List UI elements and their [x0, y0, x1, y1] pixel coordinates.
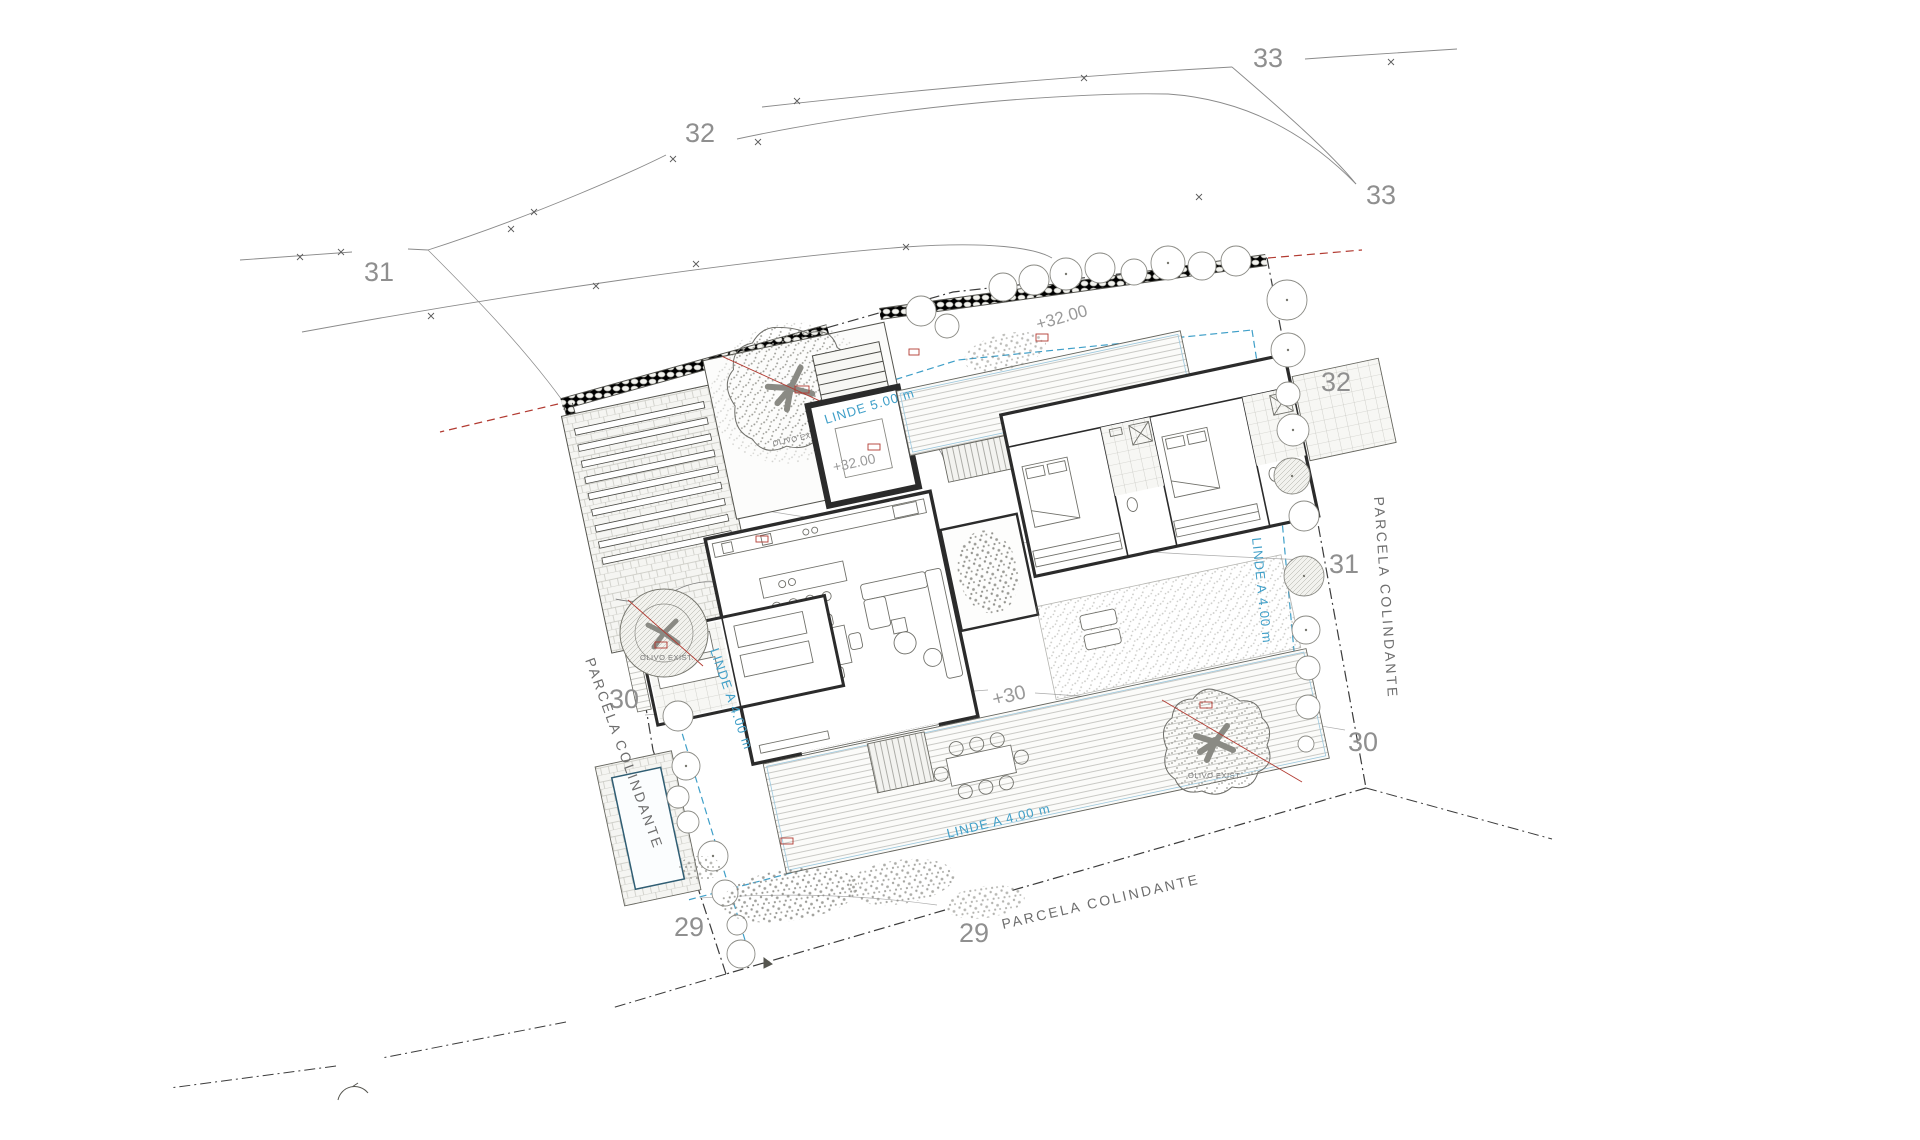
spot-level-deck: +30 — [990, 681, 1028, 711]
contour-label-32-top: 32 — [685, 118, 715, 148]
contour-label-29-bottom: 29 — [959, 918, 989, 948]
misc-symbols — [338, 958, 772, 1100]
spot-level-top: +32.00 — [1034, 301, 1090, 334]
contour-label-30-right: 30 — [1348, 727, 1378, 757]
olive-tree-west: OLIVO EXIST. — [620, 589, 708, 677]
parcel-label-bottom: PARCELA COLINDANTE — [1000, 871, 1201, 932]
contour-label-31-right: 31 — [1329, 549, 1359, 579]
olive-label-south: OLIVO EXIST. — [1188, 771, 1242, 780]
contour-label-33-right: 33 — [1366, 180, 1396, 210]
parcel-label-right: PARCELA COLINDANTE — [1371, 496, 1401, 699]
contour-label-29-left: 29 — [674, 912, 704, 942]
contour-label-31-left: 31 — [364, 257, 394, 287]
site-plan-drawing: OLIVO EXIST. +32.00 — [0, 0, 1920, 1140]
contour-label-32-right: 32 — [1321, 367, 1351, 397]
contour-label-33-top: 33 — [1253, 43, 1283, 73]
olive-label-west: OLIVO EXIST. — [640, 653, 694, 662]
